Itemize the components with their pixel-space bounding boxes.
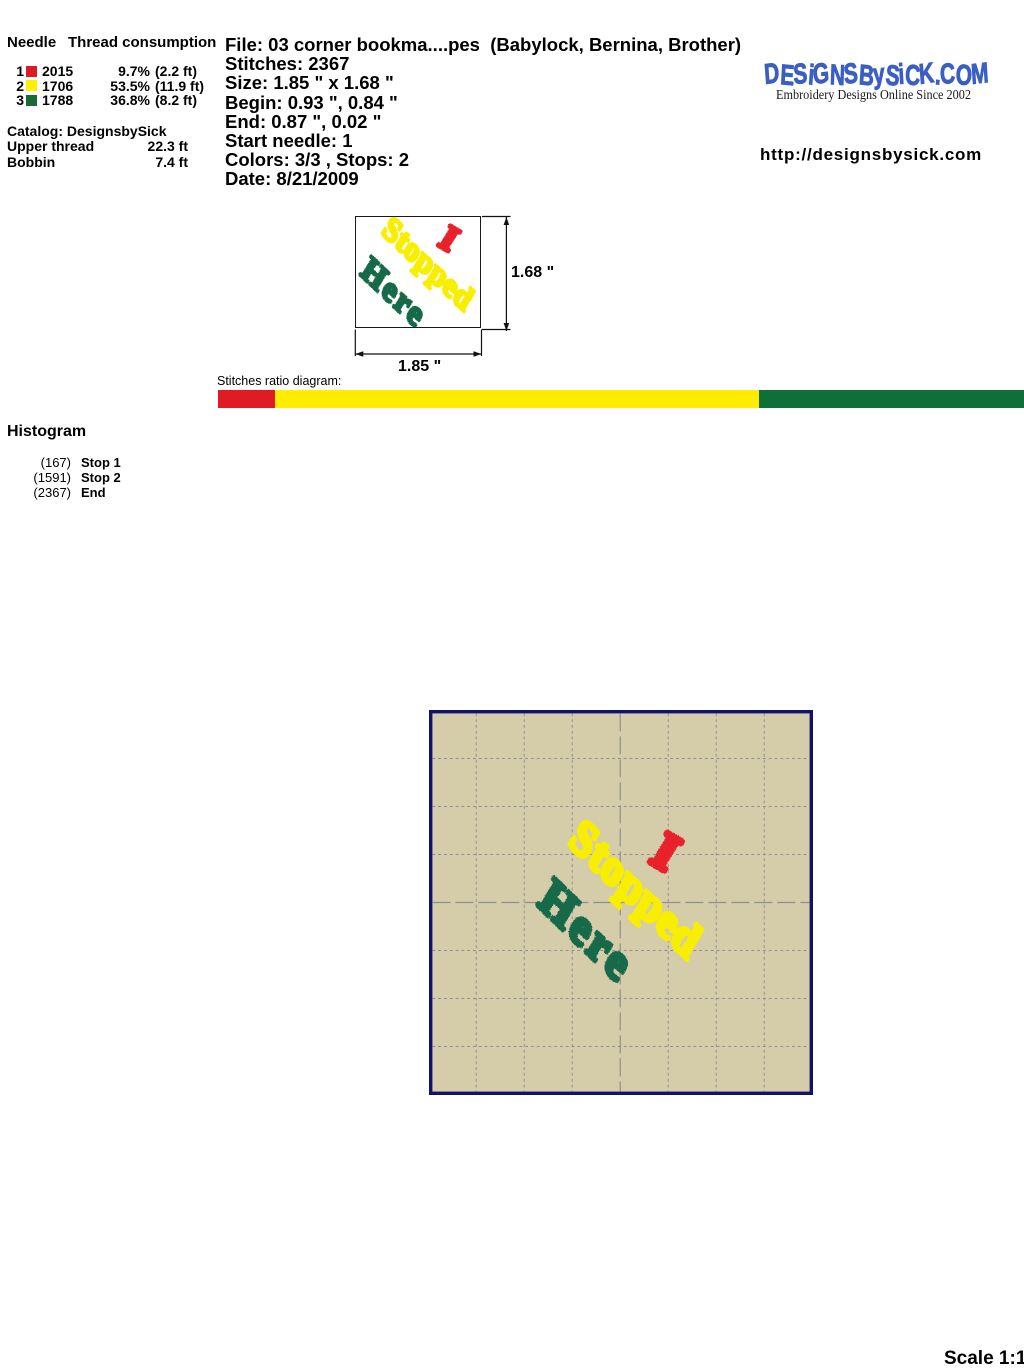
svg-text:Embroidery Designs Online Sinc: Embroidery Designs Online Since 2002 [776,87,971,102]
